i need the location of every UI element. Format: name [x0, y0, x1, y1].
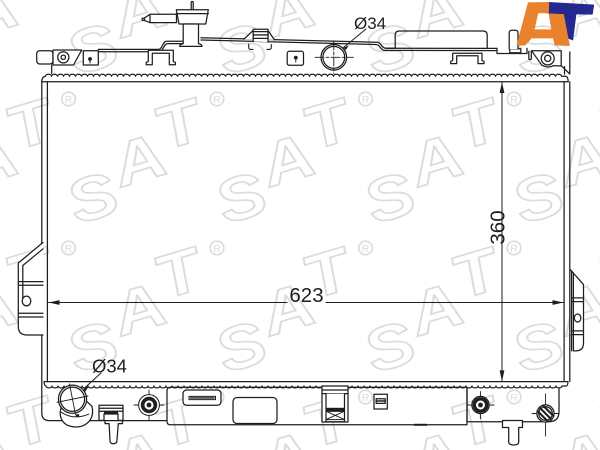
svg-text:Ø34: Ø34 [354, 14, 386, 33]
svg-text:360: 360 [487, 210, 510, 244]
svg-text:623: 623 [289, 284, 323, 307]
svg-text:Ø34: Ø34 [92, 356, 127, 377]
